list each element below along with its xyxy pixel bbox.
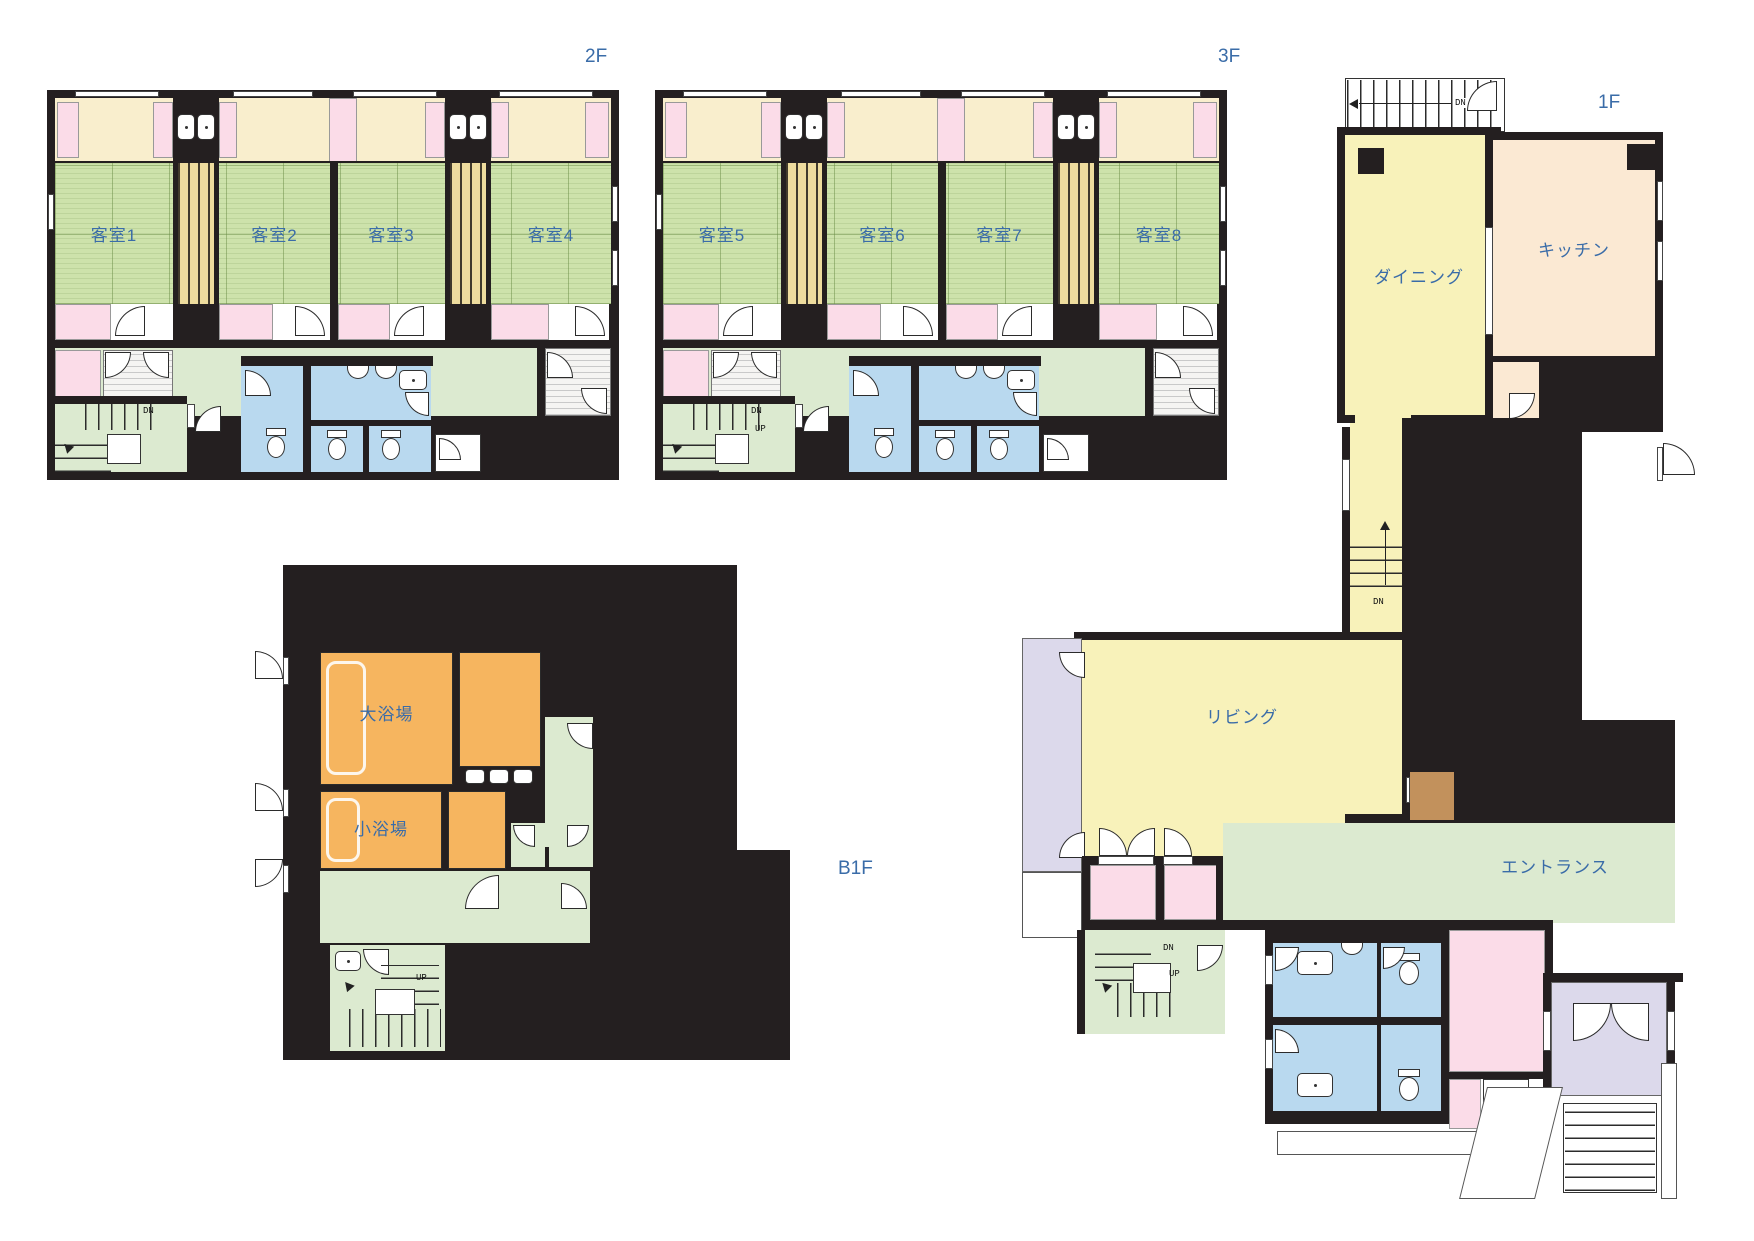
- door-gap: [187, 404, 195, 428]
- closet: [329, 98, 357, 162]
- closet: [827, 304, 881, 340]
- stair-newel: [1133, 963, 1171, 993]
- sink-icon: [1297, 951, 1333, 975]
- wall: [849, 356, 1041, 366]
- wall: [938, 163, 946, 304]
- wall: [55, 396, 187, 404]
- shaft-partition: [173, 163, 219, 304]
- closet: [338, 304, 390, 340]
- toilet-tank: [381, 430, 401, 438]
- storage-room: [1449, 1079, 1481, 1129]
- stair-dn-label: DN: [1373, 597, 1384, 607]
- window: [683, 91, 767, 97]
- stair-dn-label: DN: [1163, 943, 1174, 953]
- window: [283, 865, 289, 893]
- closet: [1164, 865, 1220, 920]
- window: [1667, 1011, 1675, 1051]
- closet: [55, 304, 111, 340]
- toilet-tank: [935, 430, 955, 438]
- stair-up-label: UP: [1169, 969, 1180, 979]
- kitchen-room: [1493, 140, 1655, 356]
- wall: [303, 366, 311, 472]
- sink-icon: [335, 951, 361, 971]
- door-arc: [1663, 443, 1695, 475]
- stair-dn-label: DN: [1455, 98, 1466, 108]
- closet: [937, 98, 965, 162]
- closet: [491, 102, 509, 158]
- window: [499, 91, 593, 97]
- wall: [1543, 973, 1683, 982]
- dining-room: [1345, 135, 1493, 415]
- plan-1f: DN ダイニング キッチン DN: [1015, 75, 1715, 1235]
- door-gap: [1163, 856, 1193, 865]
- wall: [55, 340, 611, 348]
- shower-stall: [465, 769, 485, 784]
- door-gap: [1098, 856, 1154, 865]
- wall: [1216, 865, 1223, 923]
- sink-icon: [449, 114, 467, 140]
- wall: [311, 420, 433, 426]
- closet: [663, 304, 719, 340]
- toilet-tank: [327, 430, 347, 438]
- pillar: [1627, 144, 1655, 170]
- closet: [827, 102, 845, 158]
- window: [841, 91, 921, 97]
- toilet-tank: [266, 428, 286, 436]
- toilet-icon: [1399, 1077, 1419, 1101]
- toilet-icon: [1399, 961, 1419, 985]
- sliding-door: [1485, 227, 1493, 335]
- wall: [1449, 1072, 1553, 1079]
- shower-stall: [489, 769, 509, 784]
- closet: [761, 102, 781, 158]
- bathtub-icon: [326, 661, 366, 775]
- plan-b1f: 大浴場 小浴場 UP: [283, 565, 803, 1060]
- wall: [241, 356, 433, 366]
- core-block: [1402, 418, 1582, 823]
- wall: [173, 304, 219, 340]
- door-arc: [255, 651, 283, 679]
- window: [75, 91, 159, 97]
- closet: [57, 102, 79, 158]
- wall: [330, 304, 338, 340]
- closet: [491, 304, 549, 340]
- washing-room: [448, 791, 506, 869]
- toilet-icon: [990, 438, 1008, 460]
- toilet-icon: [267, 436, 285, 458]
- stair-up-label: UP: [755, 424, 766, 434]
- window: [1657, 181, 1663, 221]
- closet: [425, 102, 445, 158]
- porch-strip: [1277, 1131, 1477, 1155]
- vestibule: [1551, 982, 1667, 1096]
- closet: [665, 102, 687, 158]
- floor-label-b1f: B1F: [838, 858, 873, 880]
- toilet-icon: [328, 438, 346, 460]
- sink-icon: [399, 370, 427, 390]
- window: [353, 91, 437, 97]
- step-treads: [1565, 1105, 1655, 1191]
- balcony-rail: [1022, 872, 1082, 938]
- floor-label-2f: 2F: [585, 46, 607, 68]
- sink-icon: [1297, 1073, 1333, 1097]
- door-gap: [1406, 777, 1410, 803]
- sink-icon: [177, 114, 195, 140]
- stair-arrow: [1380, 521, 1390, 530]
- wall: [363, 426, 369, 472]
- sink-icon: [805, 114, 823, 140]
- sink-icon: [785, 114, 803, 140]
- wall: [663, 396, 795, 404]
- closet: [153, 102, 173, 158]
- wall: [1074, 632, 1418, 640]
- stair-newel: [107, 434, 141, 464]
- wall: [1449, 920, 1553, 930]
- toilet-icon: [936, 438, 954, 460]
- wall: [330, 163, 338, 304]
- sink-icon: [197, 114, 215, 140]
- entrance-hall: [1223, 823, 1675, 923]
- stair-newel: [375, 989, 415, 1015]
- wall: [971, 426, 977, 472]
- window: [612, 186, 618, 222]
- stair-dn-label: DN: [751, 406, 762, 416]
- stair-arrow: [1349, 99, 1358, 109]
- wall: [781, 304, 827, 340]
- shower-stall: [513, 769, 533, 784]
- wall: [537, 348, 545, 416]
- stair-newel: [715, 434, 749, 464]
- wall: [445, 304, 491, 340]
- window: [48, 194, 54, 230]
- core-block: [1580, 720, 1675, 827]
- door-gap: [795, 404, 803, 428]
- washing-room: [459, 652, 541, 767]
- toilet-icon: [382, 438, 400, 460]
- stair-dn-label: DN: [143, 406, 154, 416]
- window: [233, 91, 313, 97]
- toilet-tank: [989, 430, 1009, 438]
- toilet-tank: [1398, 1069, 1420, 1077]
- closet: [219, 102, 237, 158]
- window: [612, 250, 618, 286]
- toilet-tank: [874, 428, 894, 436]
- window: [1543, 1011, 1551, 1051]
- wall: [938, 304, 946, 340]
- wall: [1077, 930, 1085, 1034]
- closet: [585, 102, 609, 158]
- window: [1657, 241, 1663, 281]
- door-arc: [255, 783, 283, 811]
- pillar: [1358, 148, 1384, 174]
- corridor: [320, 871, 590, 943]
- storage-room: [1449, 930, 1545, 1072]
- wall: [1082, 856, 1090, 930]
- shaft-partition: [781, 163, 827, 304]
- wall: [1156, 865, 1164, 920]
- stair-arrow-line: [1385, 527, 1386, 585]
- stair-up-label: UP: [416, 973, 427, 983]
- cabinet: [1410, 772, 1454, 820]
- window: [283, 789, 289, 817]
- window: [283, 657, 289, 685]
- window: [656, 194, 662, 230]
- closet: [1090, 865, 1156, 920]
- wall: [911, 366, 919, 472]
- door-gap: [1265, 1039, 1273, 1069]
- plan-2f: 客室1 客室2 客室3 客室4 廊下 DN: [47, 90, 619, 480]
- floor-plan-canvas: 2F 3F 1F B1F 客室1 客室2 客室3 客室4: [0, 0, 1754, 1241]
- floor-label-3f: 3F: [1218, 46, 1240, 68]
- window: [1342, 459, 1350, 511]
- sink-icon: [469, 114, 487, 140]
- stair-arrow-line: [1359, 103, 1451, 104]
- bathtub-icon: [326, 798, 360, 862]
- closet: [219, 304, 273, 340]
- door-gap: [1265, 955, 1273, 985]
- shaft-partition: [445, 163, 491, 304]
- toilet-icon: [875, 436, 893, 458]
- closet: [946, 304, 998, 340]
- door-arc: [255, 859, 283, 887]
- step-rail: [1661, 1063, 1677, 1199]
